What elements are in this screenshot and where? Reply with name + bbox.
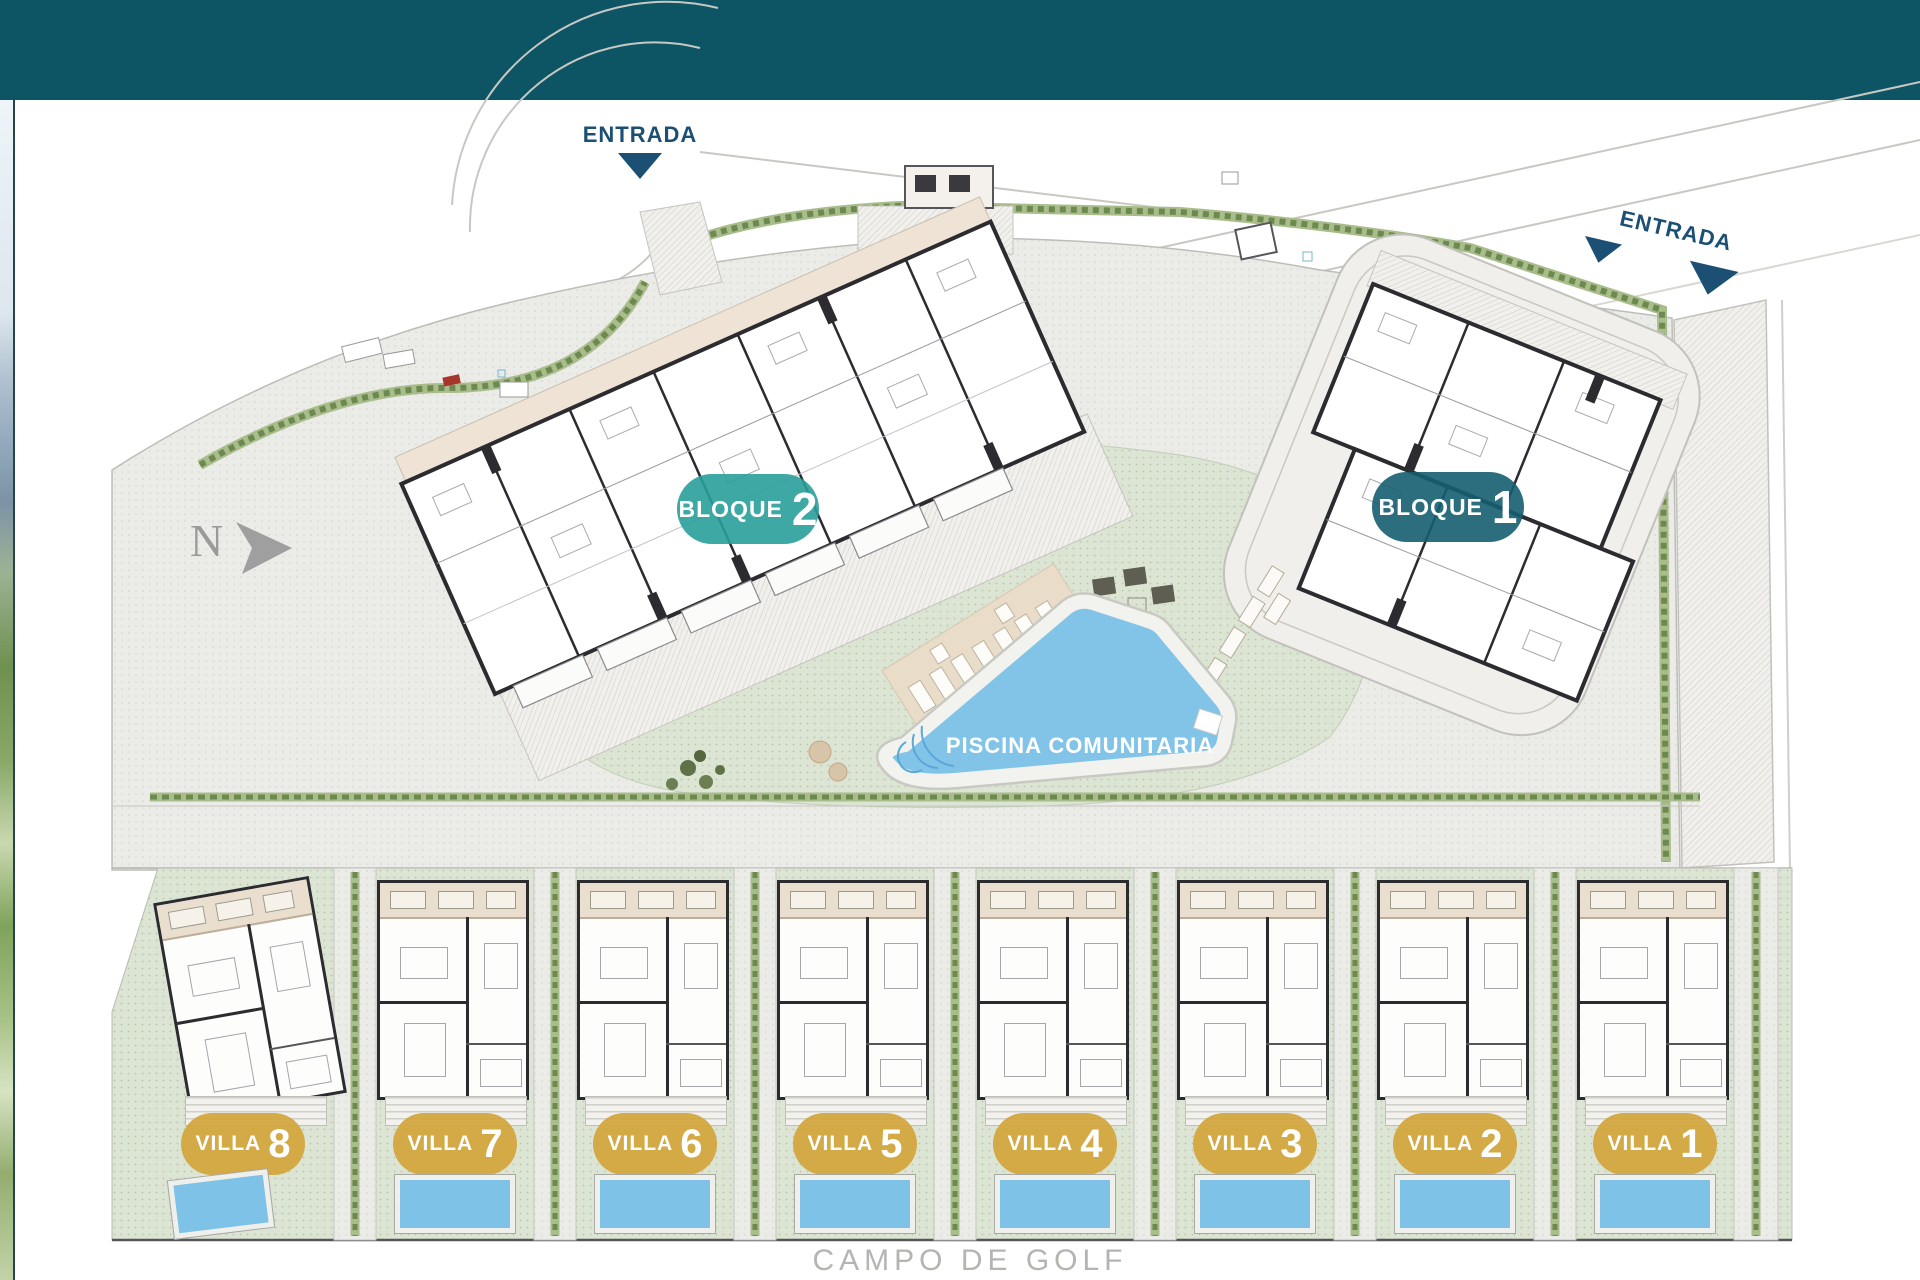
- bloque-2-badge[interactable]: BLOQUE 2: [677, 474, 819, 544]
- villa-2-number: 2: [1480, 1124, 1502, 1164]
- villa-2-badge[interactable]: VILLA2: [1393, 1113, 1517, 1175]
- villa-4-badge[interactable]: VILLA4: [993, 1113, 1117, 1175]
- villa-1-label: VILLA: [1608, 1132, 1674, 1156]
- golf-course-label: CAMPO DE GOLF: [810, 1244, 1130, 1278]
- villa-4-number: 4: [1080, 1124, 1102, 1164]
- villa-plot-7: VILLA7: [355, 868, 555, 1240]
- villa-7-pool: [395, 1175, 515, 1233]
- villa-8-label: VILLA: [196, 1132, 262, 1156]
- villa-plot-3: VILLA3: [1155, 868, 1355, 1240]
- villa-3-number: 3: [1280, 1124, 1302, 1164]
- villa-4-pool: [995, 1175, 1115, 1233]
- villa-2-pool: [1395, 1175, 1515, 1233]
- bloque-2-label: BLOQUE: [679, 496, 783, 523]
- entrance-top-label: ENTRADA: [565, 122, 715, 148]
- villa-plot-2: VILLA2: [1355, 868, 1555, 1240]
- villa-7-number: 7: [480, 1124, 502, 1164]
- villa-7-badge[interactable]: VILLA7: [393, 1113, 517, 1175]
- bloque-1-label: BLOQUE: [1379, 494, 1483, 521]
- villa-6-number: 6: [680, 1124, 702, 1164]
- villa-2-label: VILLA: [1408, 1132, 1474, 1156]
- villa-plot-5: VILLA5: [755, 868, 955, 1240]
- villa-8-badge[interactable]: VILLA8: [181, 1113, 305, 1175]
- villa-plot-4: VILLA4: [955, 868, 1155, 1240]
- villa-7-floorplan: [377, 880, 529, 1100]
- villa-4-label: VILLA: [1008, 1132, 1074, 1156]
- villa-3-label: VILLA: [1208, 1132, 1274, 1156]
- villa-2-floorplan: [1377, 880, 1529, 1100]
- masterplan-page: N ENTRADA ENTRADA BLOQUE 2 BLOQUE 1 PISC…: [0, 0, 1920, 1280]
- villa-6-pool: [595, 1175, 715, 1233]
- villa-5-pool: [795, 1175, 915, 1233]
- villa-1-floorplan: [1577, 880, 1729, 1100]
- entrance-top: ENTRADA: [565, 122, 715, 148]
- villa-5-label: VILLA: [808, 1132, 874, 1156]
- bloque-1-badge[interactable]: BLOQUE 1: [1372, 472, 1524, 542]
- villa-3-badge[interactable]: VILLA3: [1193, 1113, 1317, 1175]
- pool-label: PISCINA COMUNITARIA: [940, 733, 1220, 759]
- villa-plot-1: VILLA1: [1555, 868, 1755, 1240]
- villa-6-floorplan: [577, 880, 729, 1100]
- villa-5-number: 5: [880, 1124, 902, 1164]
- villa-3-pool: [1195, 1175, 1315, 1233]
- villa-5-floorplan: [777, 880, 929, 1100]
- villa-4-floorplan: [977, 880, 1129, 1100]
- villa-5-badge[interactable]: VILLA5: [793, 1113, 917, 1175]
- villa-8-floorplan: [153, 876, 347, 1120]
- north-label: N: [190, 514, 223, 567]
- north-arrow-icon: [234, 518, 294, 578]
- north-indicator: N: [190, 512, 300, 582]
- bloque-2-number: 2: [792, 486, 818, 532]
- villa-1-number: 1: [1680, 1124, 1702, 1164]
- villa-3-floorplan: [1177, 880, 1329, 1100]
- villa-1-badge[interactable]: VILLA1: [1593, 1113, 1717, 1175]
- villa-7-label: VILLA: [408, 1132, 474, 1156]
- villa-1-pool: [1595, 1175, 1715, 1233]
- bloque-1-number: 1: [1492, 484, 1518, 530]
- villa-6-badge[interactable]: VILLA6: [593, 1113, 717, 1175]
- villa-8-pool: [168, 1169, 274, 1239]
- villa-6-label: VILLA: [608, 1132, 674, 1156]
- villa-plot-6: VILLA6: [555, 868, 755, 1240]
- villa-8-number: 8: [268, 1124, 290, 1164]
- villa-plot-8: VILLA8: [155, 868, 355, 1240]
- entrance-top-arrow-icon: [618, 153, 662, 179]
